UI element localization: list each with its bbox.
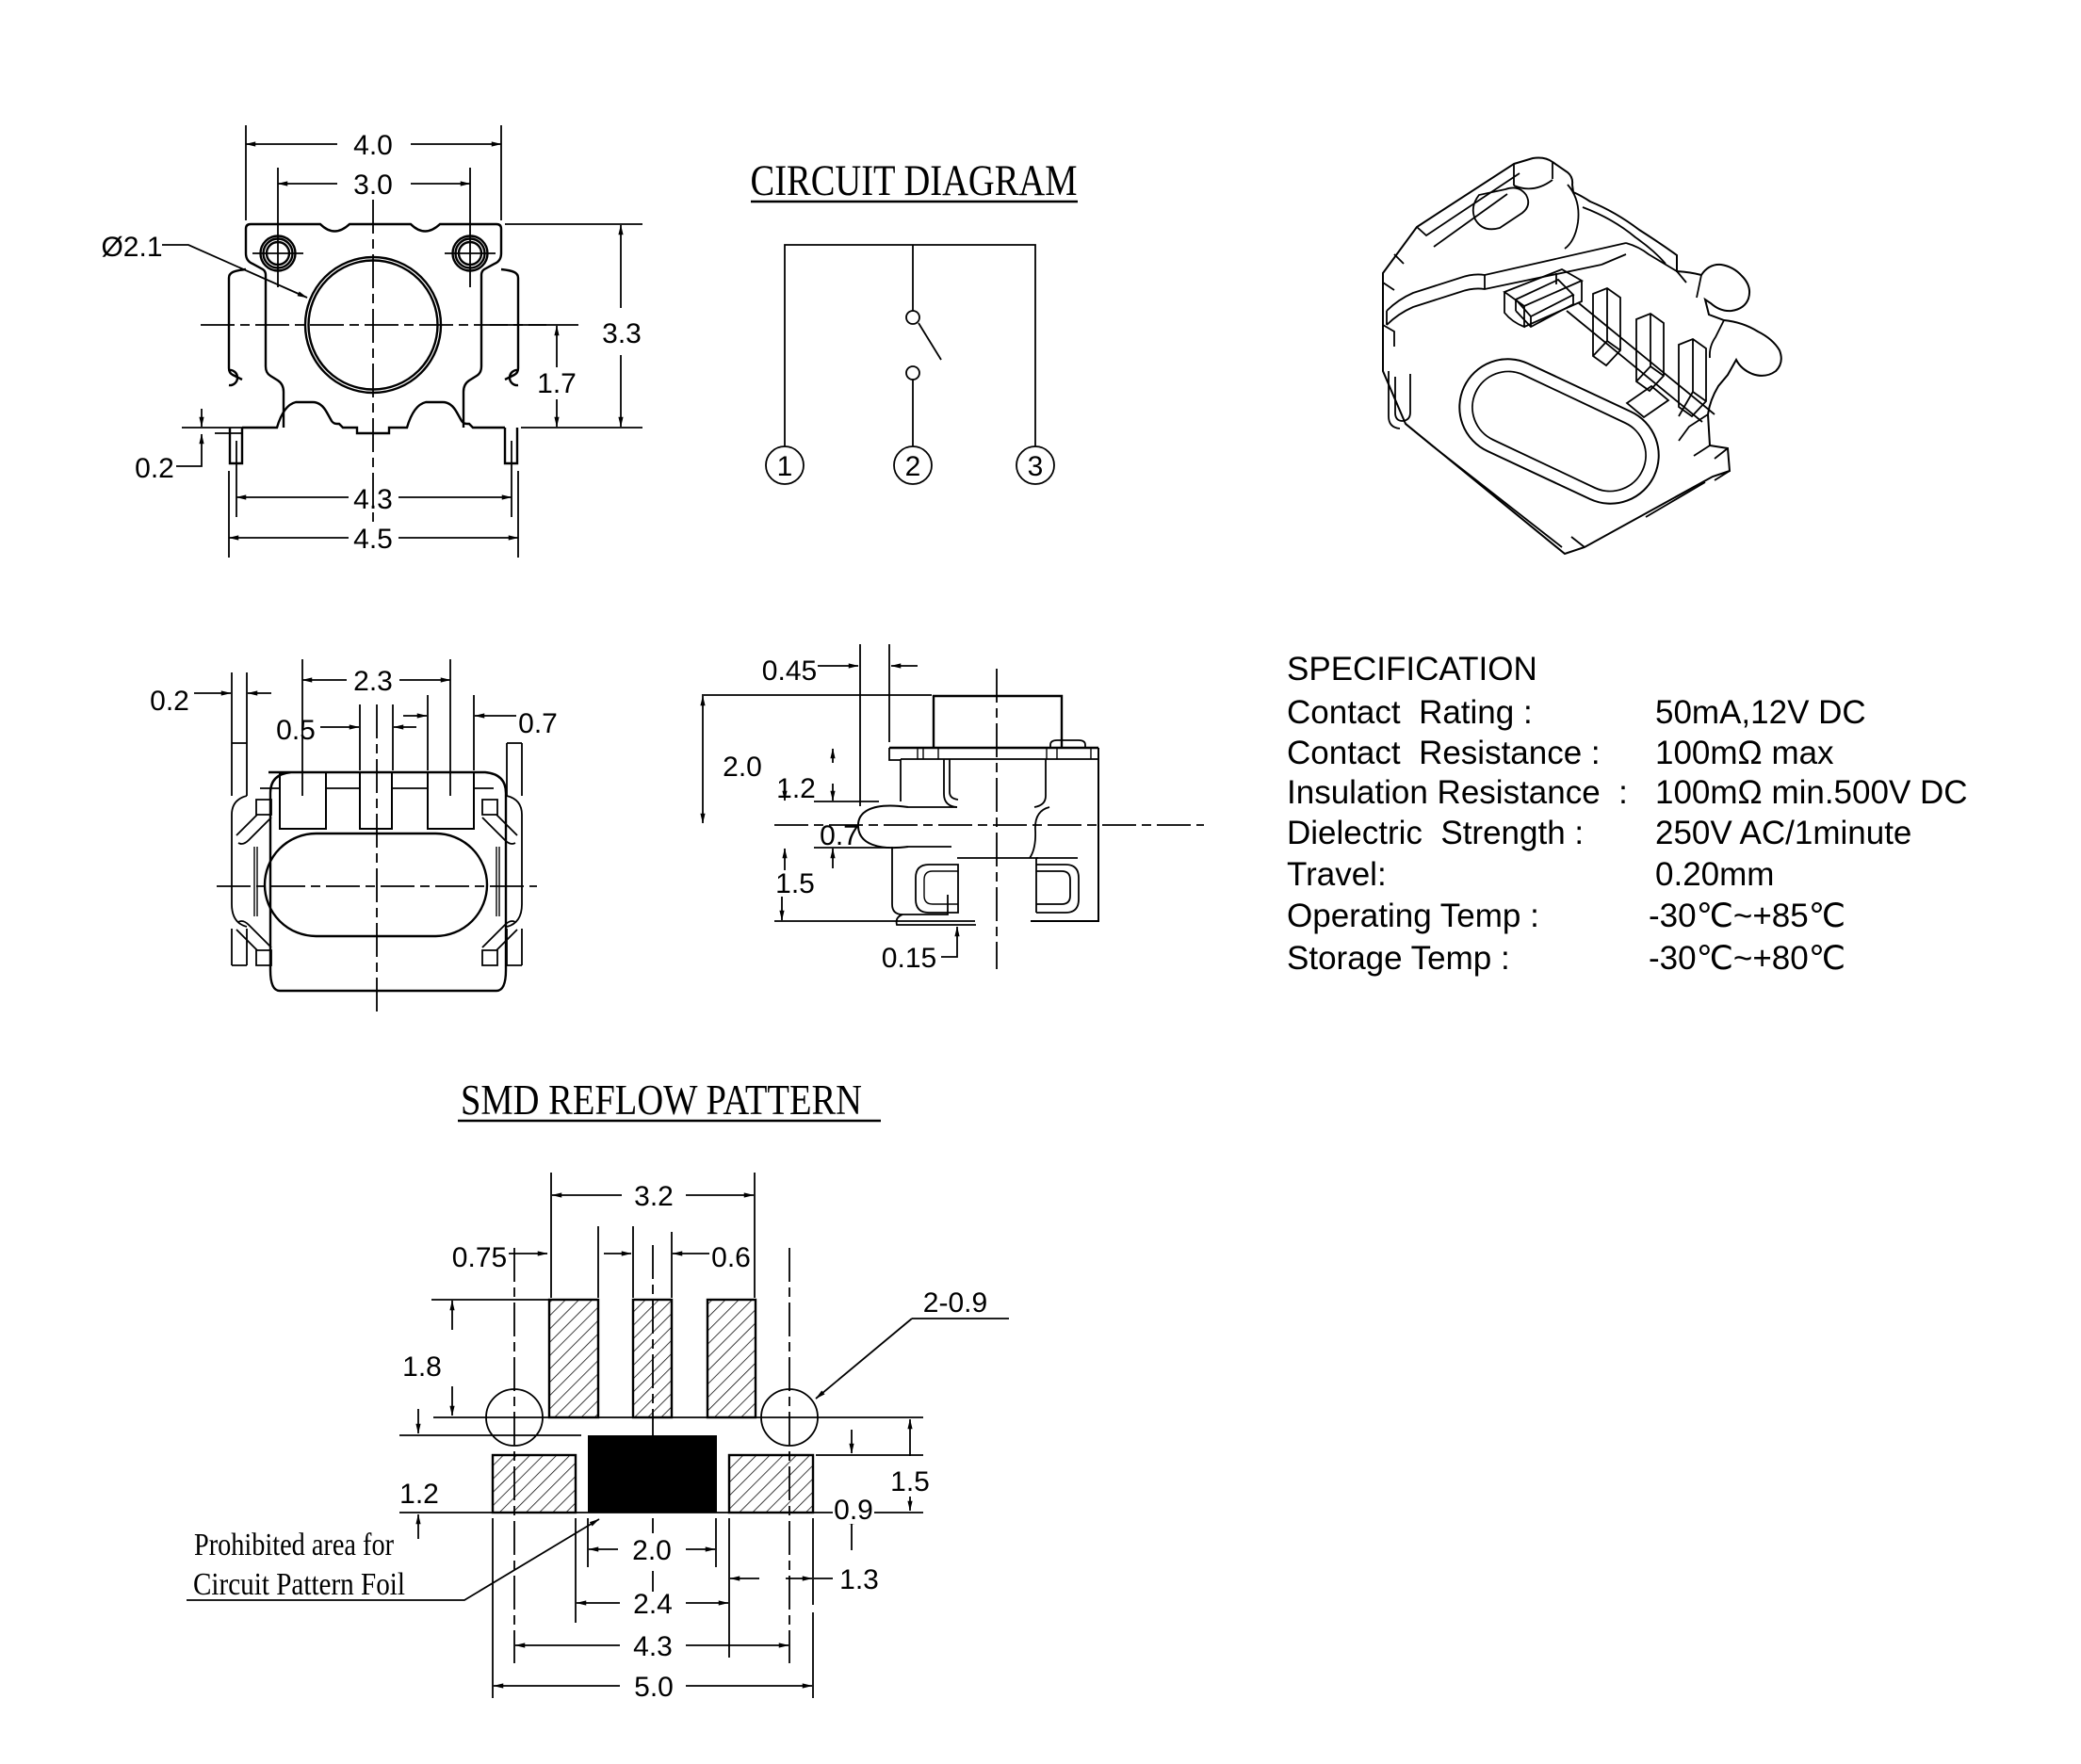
svg-text:3.0: 3.0: [353, 170, 393, 201]
svg-text:Dielectric Strength :: Dielectric Strength :: [1287, 815, 1584, 851]
svg-text:Ø2.1: Ø2.1: [101, 232, 162, 263]
svg-text:0.5: 0.5: [276, 715, 316, 746]
svg-text:4.3: 4.3: [633, 1631, 673, 1662]
svg-text:Prohibited area for: Prohibited area for: [194, 1528, 395, 1562]
svg-text:1.8: 1.8: [402, 1351, 442, 1383]
svg-text:2-0.9: 2-0.9: [923, 1287, 987, 1319]
svg-text:Travel:: Travel:: [1287, 856, 1387, 893]
svg-text:-30℃~+80℃: -30℃~+80℃: [1649, 940, 1845, 977]
svg-text:1.2: 1.2: [399, 1479, 439, 1510]
svg-text:1: 1: [777, 451, 793, 482]
svg-text:3.3: 3.3: [602, 318, 642, 349]
svg-text:3: 3: [1028, 451, 1044, 482]
svg-text:4.0: 4.0: [353, 130, 393, 161]
svg-text:0.75: 0.75: [452, 1242, 507, 1273]
svg-text:Contact Resistance :: Contact Resistance :: [1287, 735, 1601, 771]
svg-text:50mA,12V DC: 50mA,12V DC: [1655, 694, 1866, 731]
svg-text:0.2: 0.2: [135, 453, 174, 484]
svg-text:SMD REFLOW PATTERN: SMD REFLOW PATTERN: [461, 1076, 862, 1124]
svg-text:0.15: 0.15: [882, 943, 936, 974]
svg-text:Circuit Pattern Foil: Circuit Pattern Foil: [193, 1567, 405, 1602]
svg-text:1.5: 1.5: [890, 1466, 930, 1497]
svg-text:Operating Temp :: Operating Temp :: [1287, 898, 1539, 934]
svg-text:3.2: 3.2: [634, 1181, 674, 1212]
svg-text:2.0: 2.0: [723, 752, 762, 783]
svg-text:-30℃~+85℃: -30℃~+85℃: [1649, 898, 1845, 934]
svg-text:1.7: 1.7: [537, 368, 577, 399]
svg-text:2.0: 2.0: [632, 1535, 672, 1566]
svg-text:0.2: 0.2: [150, 686, 189, 717]
svg-text:5.0: 5.0: [634, 1672, 674, 1703]
svg-text:4.3: 4.3: [353, 484, 393, 515]
svg-text:1.5: 1.5: [775, 868, 815, 899]
svg-text:Insulation Resistance :: Insulation Resistance :: [1287, 774, 1628, 811]
svg-text:100mΩ max: 100mΩ max: [1655, 735, 1834, 771]
svg-text:0.45: 0.45: [762, 655, 817, 687]
svg-text:0.7: 0.7: [518, 708, 558, 739]
svg-text:SPECIFICATION: SPECIFICATION: [1287, 651, 1537, 688]
svg-text:Storage Temp :: Storage Temp :: [1287, 940, 1510, 977]
svg-text:250V AC/1minute: 250V AC/1minute: [1655, 815, 1911, 851]
svg-text:1.3: 1.3: [839, 1564, 879, 1595]
svg-text:0.9: 0.9: [834, 1495, 873, 1526]
svg-text:2.4: 2.4: [633, 1589, 673, 1620]
svg-text:2: 2: [905, 451, 921, 482]
svg-text:0.20mm: 0.20mm: [1655, 856, 1774, 893]
svg-text:4.5: 4.5: [353, 524, 393, 555]
svg-text:CIRCUIT DIAGRAM: CIRCUIT DIAGRAM: [751, 156, 1078, 205]
svg-text:2.3: 2.3: [353, 666, 393, 697]
svg-text:Contact Rating :: Contact Rating :: [1287, 694, 1533, 731]
svg-text:1.2: 1.2: [776, 773, 816, 804]
svg-text:0.6: 0.6: [711, 1242, 751, 1273]
svg-text:0.7: 0.7: [820, 820, 859, 851]
svg-text:100mΩ min.500V DC: 100mΩ min.500V DC: [1655, 774, 1968, 811]
